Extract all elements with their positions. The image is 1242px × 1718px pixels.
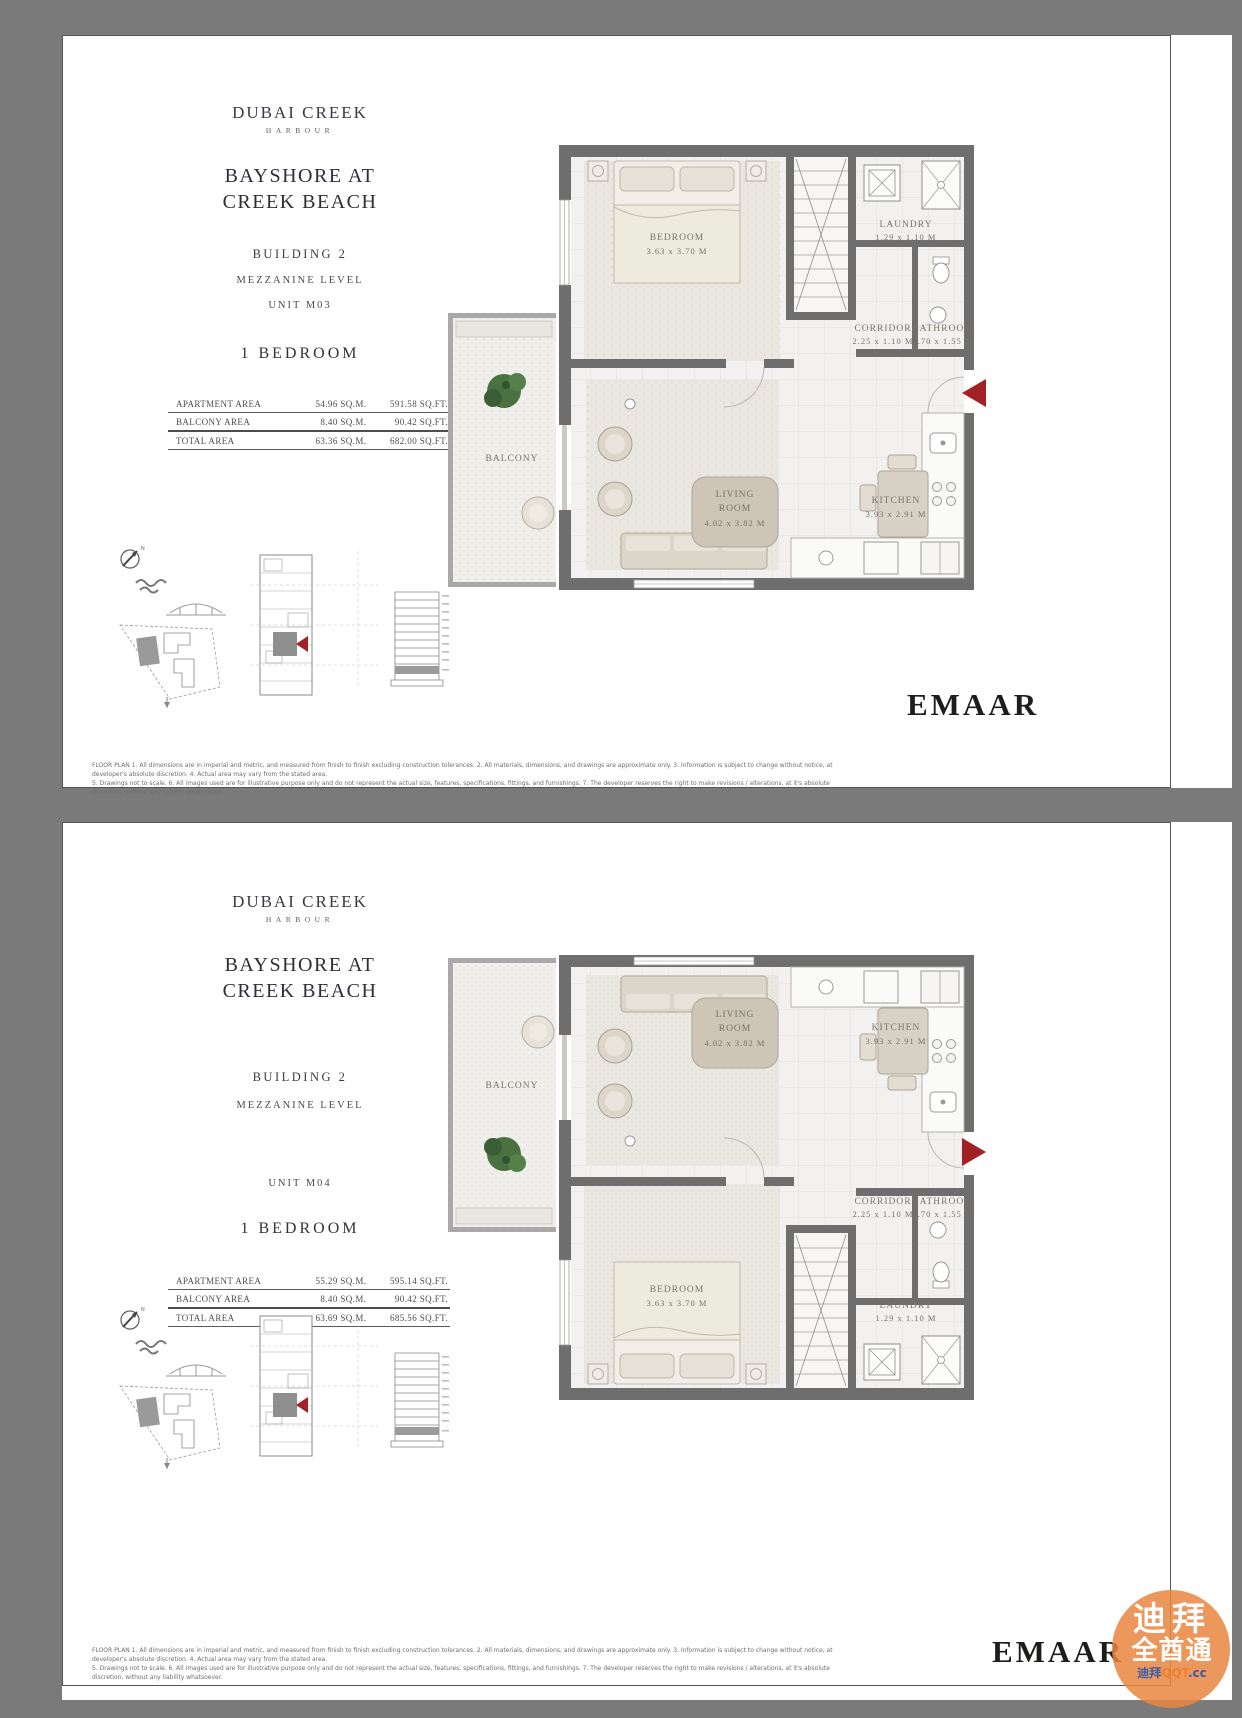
locator-diagrams [110, 1298, 450, 1470]
watermark-stamp: 迪拜 全酋通 迪拜QQT.cc [1108, 1586, 1236, 1714]
area-table: APARTMENT AREA 54.96 SQ.M. 591.58 SQ.FT.… [168, 395, 450, 450]
balcony-label: BALCONY [486, 454, 539, 464]
unit-label: UNIT M04 [150, 1178, 450, 1189]
building-label: BUILDING 2 [150, 1070, 450, 1085]
dubai-creek-harbour-logo: DUBAI CREEK HARBOUR [150, 892, 450, 924]
bathroom-dims: 2.70 x 1.55 M [913, 336, 974, 346]
bedroom-dims: 3.63 x 3.70 M [647, 1298, 708, 1308]
bathroom-label: BATHROOM [912, 1197, 973, 1207]
living-label-1: LIVING [716, 1010, 755, 1020]
bedroom-count-label: 1 BEDROOM [150, 1220, 450, 1238]
kitchen-label: KITCHEN [872, 496, 921, 506]
corridor-dims: 2.25 x 1.10 M [853, 1209, 914, 1219]
table-row: BALCONY AREA 8.40 SQ.M. 90.42 SQ.FT. [168, 413, 450, 432]
bedroom-label: BEDROOM [650, 1285, 705, 1295]
locator-diagrams: N [110, 537, 450, 709]
living-label-2: ROOM [719, 504, 752, 514]
brochure-page-m04: DUBAI CREEK HARBOUR BAYSHORE AT CREEK BE… [62, 822, 1232, 1700]
corridor-dims: 2.25 x 1.10 M [853, 336, 914, 346]
dubai-creek-harbour-logo: DUBAI CREEK HARBOUR [150, 103, 450, 135]
pdf-canvas: DUBAI CREEK HARBOUR BAYSHORE AT CREEK BE… [0, 0, 1242, 1718]
level-label: MEZZANINE LEVEL [150, 1100, 450, 1111]
floor-plan-m03: BEDROOM 3.63 x 3.70 M LAUNDRY 1.29 x 1.1… [434, 145, 994, 605]
building-label: BUILDING 2 [150, 247, 450, 262]
watermark-text-top: 迪拜 [1108, 1602, 1236, 1636]
kitchen-dims: 3.93 x 2.91 M [866, 509, 927, 519]
bathroom-dims: 2.70 x 1.55 M [913, 1209, 974, 1219]
corridor-label: CORRIDOR [854, 324, 911, 334]
balcony-label: BALCONY [486, 1081, 539, 1091]
unit-label: UNIT M03 [150, 300, 450, 311]
emaar-logo: EMAAR [907, 687, 1039, 723]
unit-direction-marker [962, 1138, 986, 1166]
disclaimer-text: FLOOR PLAN 1. All dimensions are in impe… [92, 761, 850, 797]
table-row: TOTAL AREA 63.36 SQ.M. 682.00 SQ.FT. [168, 432, 450, 450]
emaar-logo: EMAAR [992, 1634, 1124, 1670]
laundry-label: LAUNDRY [880, 1301, 933, 1311]
project-title: BAYSHORE AT CREEK BEACH [150, 163, 450, 215]
unit-direction-marker [962, 379, 986, 407]
logo-line1: DUBAI CREEK [150, 892, 450, 912]
living-label-2: ROOM [719, 1024, 752, 1034]
table-row: APARTMENT AREA 55.29 SQ.M. 595.14 SQ.FT. [168, 1272, 450, 1290]
logo-line2: HARBOUR [150, 915, 450, 924]
kitchen-dims: 3.93 x 2.91 M [866, 1036, 927, 1046]
disclaimer-text: FLOOR PLAN 1. All dimensions are in impe… [92, 1646, 850, 1682]
logo-line1: DUBAI CREEK [150, 103, 450, 123]
corridor-label: CORRIDOR [854, 1197, 911, 1207]
project-title: BAYSHORE AT CREEK BEACH [150, 952, 450, 1004]
laundry-dims: 1.29 x 1.10 M [876, 1313, 937, 1323]
kitchen-label: KITCHEN [872, 1023, 921, 1033]
laundry-label: LAUNDRY [880, 220, 933, 230]
living-dims: 4.02 x 3.82 M [705, 1038, 766, 1048]
living-dims: 4.02 x 3.82 M [705, 518, 766, 528]
bedroom-dims: 3.63 x 3.70 M [647, 246, 708, 256]
brochure-page-m03: DUBAI CREEK HARBOUR BAYSHORE AT CREEK BE… [62, 35, 1232, 788]
laundry-dims: 1.29 x 1.10 M [876, 232, 937, 242]
table-row: APARTMENT AREA 54.96 SQ.M. 591.58 SQ.FT. [168, 395, 450, 413]
bedroom-label: BEDROOM [650, 233, 705, 243]
watermark-text-bottom: 全酋通 [1108, 1636, 1236, 1666]
watermark-url: 迪拜QQT.cc [1108, 1666, 1236, 1680]
bedroom-count-label: 1 BEDROOM [150, 345, 450, 363]
floor-plan-m04: LIVING ROOM 4.02 x 3.82 M KITCHEN 3.93 x… [434, 940, 994, 1400]
level-label: MEZZANINE LEVEL [150, 275, 450, 286]
logo-line2: HARBOUR [150, 126, 450, 135]
bathroom-label: BATHROOM [912, 324, 973, 334]
living-label-1: LIVING [716, 490, 755, 500]
